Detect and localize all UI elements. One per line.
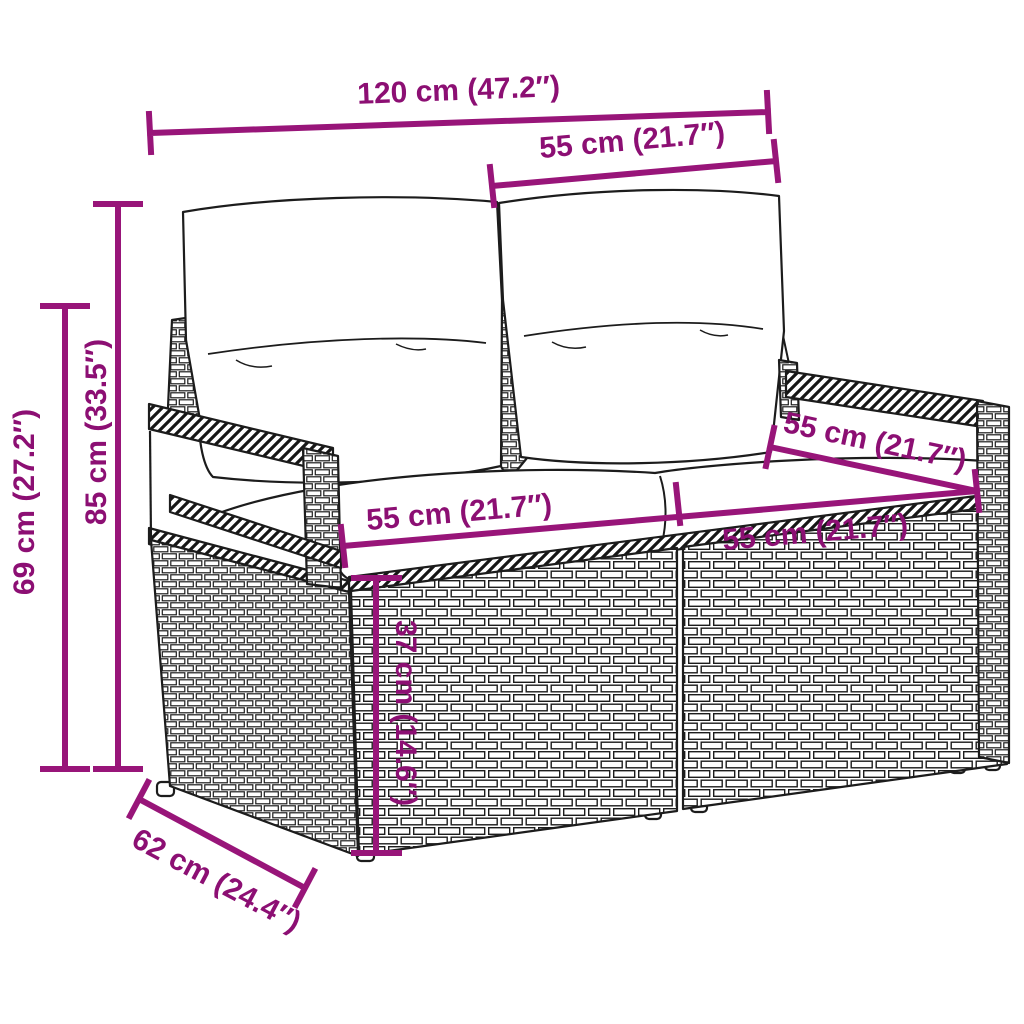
- label-seat-height: 37 cm (14.6″): [389, 620, 422, 806]
- armrest-right-column: [977, 401, 1009, 763]
- dimension-diagram: 120 cm (47.2″) 55 cm (21.7″) 85 cm (33.5…: [0, 0, 1024, 1024]
- label-overall-width: 120 cm (47.2″): [357, 70, 561, 111]
- label-armrest-height: 69 cm (27.2″): [8, 409, 41, 595]
- armrest-left-outer-edge: [150, 431, 151, 540]
- label-overall-height: 85 cm (33.5″): [80, 339, 113, 525]
- garden-sofa-dimension-drawing: 120 cm (47.2″) 55 cm (21.7″) 85 cm (33.5…: [0, 0, 1024, 1024]
- label-backrest-section-width: 55 cm (21.7″): [538, 116, 726, 165]
